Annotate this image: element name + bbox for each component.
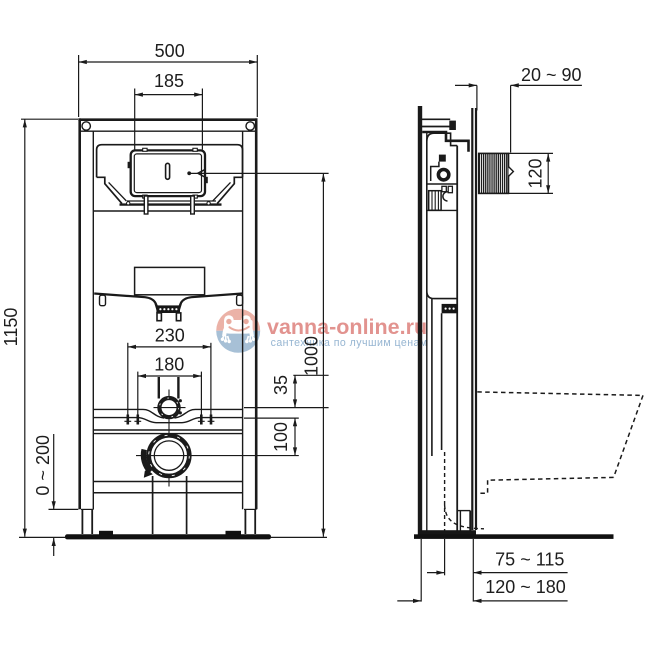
- svg-text:1150: 1150: [1, 308, 21, 347]
- svg-text:120: 120: [525, 158, 545, 188]
- svg-text:75 ~ 115: 75 ~ 115: [495, 549, 564, 569]
- svg-text:1000: 1000: [302, 336, 322, 376]
- svg-text:230: 230: [155, 326, 185, 346]
- svg-text:120 ~ 180: 120 ~ 180: [485, 577, 566, 597]
- svg-text:185: 185: [154, 71, 184, 91]
- svg-text:35: 35: [271, 375, 291, 395]
- svg-text:100: 100: [271, 422, 291, 452]
- svg-text:20 ~ 90: 20 ~ 90: [521, 65, 582, 85]
- svg-text:500: 500: [155, 41, 185, 61]
- svg-text:180: 180: [154, 355, 184, 375]
- svg-text:0 ~ 200: 0 ~ 200: [33, 435, 53, 496]
